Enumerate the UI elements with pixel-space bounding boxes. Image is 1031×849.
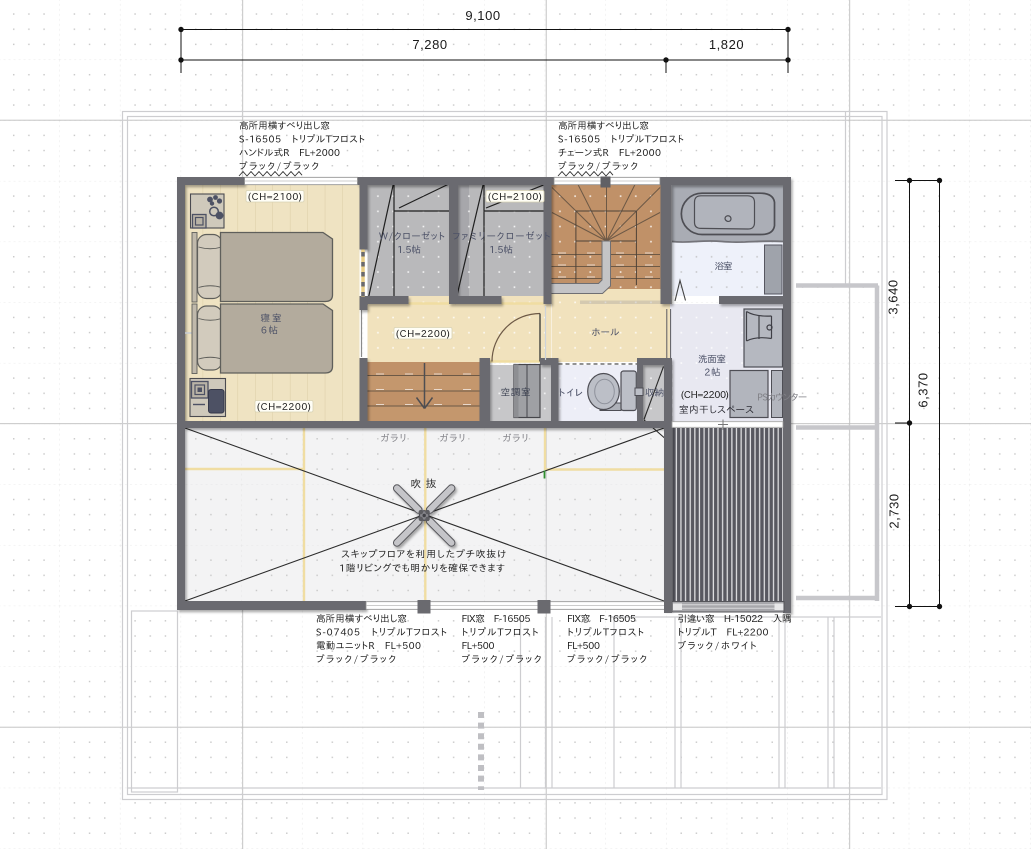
svg-text:FIX窓 F-16505: FIX窓 F-16505 xyxy=(462,614,531,624)
svg-text:1,820: 1,820 xyxy=(709,37,744,52)
svg-text:ブラック/ブラック: ブラック/ブラック xyxy=(558,160,638,171)
svg-text:トリプルTフロスト: トリプルTフロスト xyxy=(462,627,539,638)
svg-text:ファミリークローゼット: ファミリークローゼット xyxy=(453,232,551,242)
svg-text:FL+500: FL+500 xyxy=(462,642,495,651)
svg-text:FIX窓 F-16505: FIX窓 F-16505 xyxy=(567,614,636,624)
svg-text:S-16505 トリプルTフロスト: S-16505 トリプルTフロスト xyxy=(558,134,684,145)
svg-text:トイレ: トイレ xyxy=(559,388,583,398)
svg-text:トリプルTフロスト: トリプルTフロスト xyxy=(567,627,644,638)
svg-text:PSカウンター: PSカウンター xyxy=(757,393,807,403)
svg-text:引違い窓 H-15022 入隅: 引違い窓 H-15022 入隅 xyxy=(678,614,792,624)
svg-text:トリプルT FL+2200: トリプルT FL+2200 xyxy=(678,627,769,638)
svg-text:(CH=2200): (CH=2200) xyxy=(257,402,311,412)
svg-text:空調室: 空調室 xyxy=(501,387,531,398)
svg-text:W/クローゼット: W/クローゼット xyxy=(379,232,445,242)
svg-text:ブラック/ブラック: ブラック/ブラック xyxy=(462,653,542,664)
svg-text:1.5帖: 1.5帖 xyxy=(489,245,513,255)
svg-text:S-16505 トリプルTフロスト: S-16505 トリプルTフロスト xyxy=(239,134,365,145)
svg-text:収納: 収納 xyxy=(645,388,664,398)
svg-text:ブラック/ブラック: ブラック/ブラック xyxy=(316,653,396,664)
svg-text:浴室: 浴室 xyxy=(715,262,733,272)
svg-text:高所用横すべり出し窓: 高所用横すべり出し窓 xyxy=(558,121,649,131)
svg-text:チェーン式R FL+2000: チェーン式R FL+2000 xyxy=(558,148,661,158)
svg-text:ガラリ: ガラリ xyxy=(381,434,407,444)
svg-text:寝室: 寝室 xyxy=(261,314,282,324)
svg-text:高所用横すべり出し窓: 高所用横すべり出し窓 xyxy=(239,121,330,131)
svg-text:7,280: 7,280 xyxy=(412,37,447,52)
svg-text:洗面室: 洗面室 xyxy=(698,354,726,365)
svg-text:FL+500: FL+500 xyxy=(567,642,600,651)
svg-text:6,370: 6,370 xyxy=(916,372,931,407)
svg-text:6帖: 6帖 xyxy=(261,326,278,336)
svg-text:3,640: 3,640 xyxy=(886,279,901,314)
svg-text:室内干しスペース: 室内干しスペース xyxy=(679,404,754,415)
svg-text:9,100: 9,100 xyxy=(465,8,500,23)
svg-text:ホール: ホール xyxy=(592,329,620,338)
svg-text:ハンドル式R FL+2000: ハンドル式R FL+2000 xyxy=(239,148,340,158)
svg-text:高所用横すべり出し窓: 高所用横すべり出し窓 xyxy=(316,614,407,624)
svg-text:(CH=2100): (CH=2100) xyxy=(248,192,302,202)
svg-text:電動ユニットR FL+500: 電動ユニットR FL+500 xyxy=(316,641,421,651)
svg-text:ブラック/ブラック: ブラック/ブラック xyxy=(239,160,319,171)
svg-text:(CH=2200): (CH=2200) xyxy=(396,329,450,339)
svg-text:スキップフロアを利用したプチ吹抜け: スキップフロアを利用したプチ吹抜け xyxy=(341,549,506,560)
svg-text:ブラック/ホワイト: ブラック/ホワイト xyxy=(678,640,757,651)
svg-text:ブラック/ブラック: ブラック/ブラック xyxy=(567,653,647,664)
svg-text:2,730: 2,730 xyxy=(887,493,902,528)
svg-text:S-07405 トリプルTフロスト: S-07405 トリプルTフロスト xyxy=(316,627,447,638)
svg-text:(CH=2200): (CH=2200) xyxy=(681,390,729,400)
svg-text:1.5帖: 1.5帖 xyxy=(397,245,421,255)
svg-text:ガラリ: ガラリ xyxy=(503,434,529,444)
svg-text:ガラリ: ガラリ xyxy=(440,434,466,444)
svg-text:(CH=2100): (CH=2100) xyxy=(488,192,542,202)
svg-text:2帖: 2帖 xyxy=(705,368,721,378)
svg-text:1階リビングでも明かりを確保できます: 1階リビングでも明かりを確保できます xyxy=(339,563,505,574)
